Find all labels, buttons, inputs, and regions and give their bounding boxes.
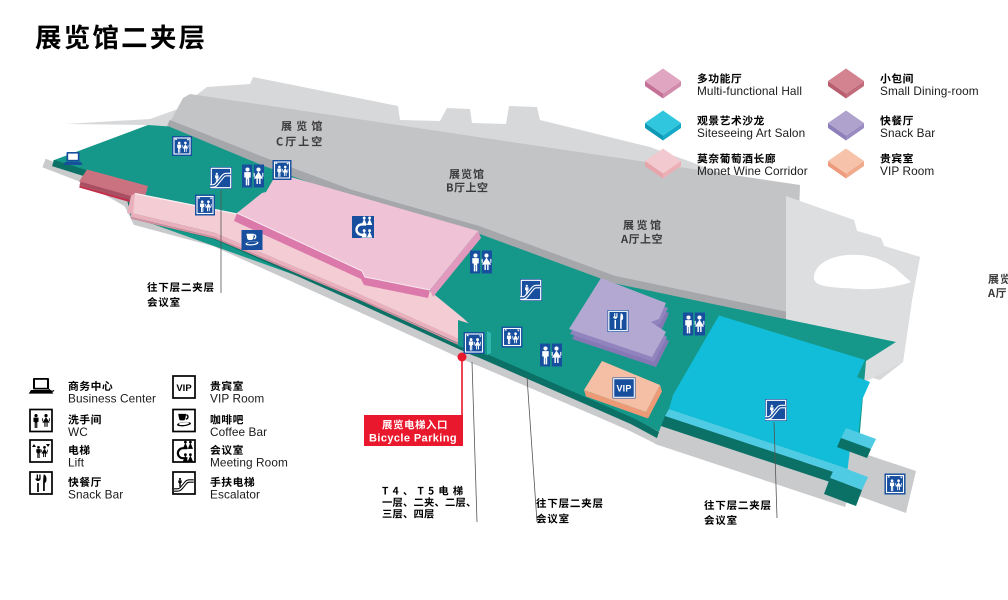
svg-text:Small Dining-room: Small Dining-room (880, 84, 979, 98)
svg-text:Lift: Lift (68, 456, 85, 470)
svg-text:Monet Wine Corridor: Monet Wine Corridor (697, 164, 808, 178)
svg-text:Coffee Bar: Coffee Bar (210, 425, 267, 439)
svg-text:WC: WC (68, 425, 88, 439)
svg-text:VIP Room: VIP Room (880, 164, 934, 178)
svg-text:VIP Room: VIP Room (210, 392, 264, 406)
svg-text:Escalator: Escalator (210, 488, 260, 502)
svg-text:VIP: VIP (176, 383, 192, 394)
svg-text:Snack Bar: Snack Bar (68, 488, 123, 502)
svg-text:Multi-functional Hall: Multi-functional Hall (697, 84, 802, 98)
svg-text:Bicycle Parking: Bicycle Parking (369, 433, 457, 445)
svg-text:Siteseeing Art Salon: Siteseeing Art Salon (697, 126, 805, 140)
svg-text:Business Center: Business Center (68, 392, 156, 406)
svg-text:VIP: VIP (616, 383, 631, 393)
svg-text:Snack Bar: Snack Bar (880, 126, 935, 140)
svg-text:Meeting Room: Meeting Room (210, 456, 288, 470)
